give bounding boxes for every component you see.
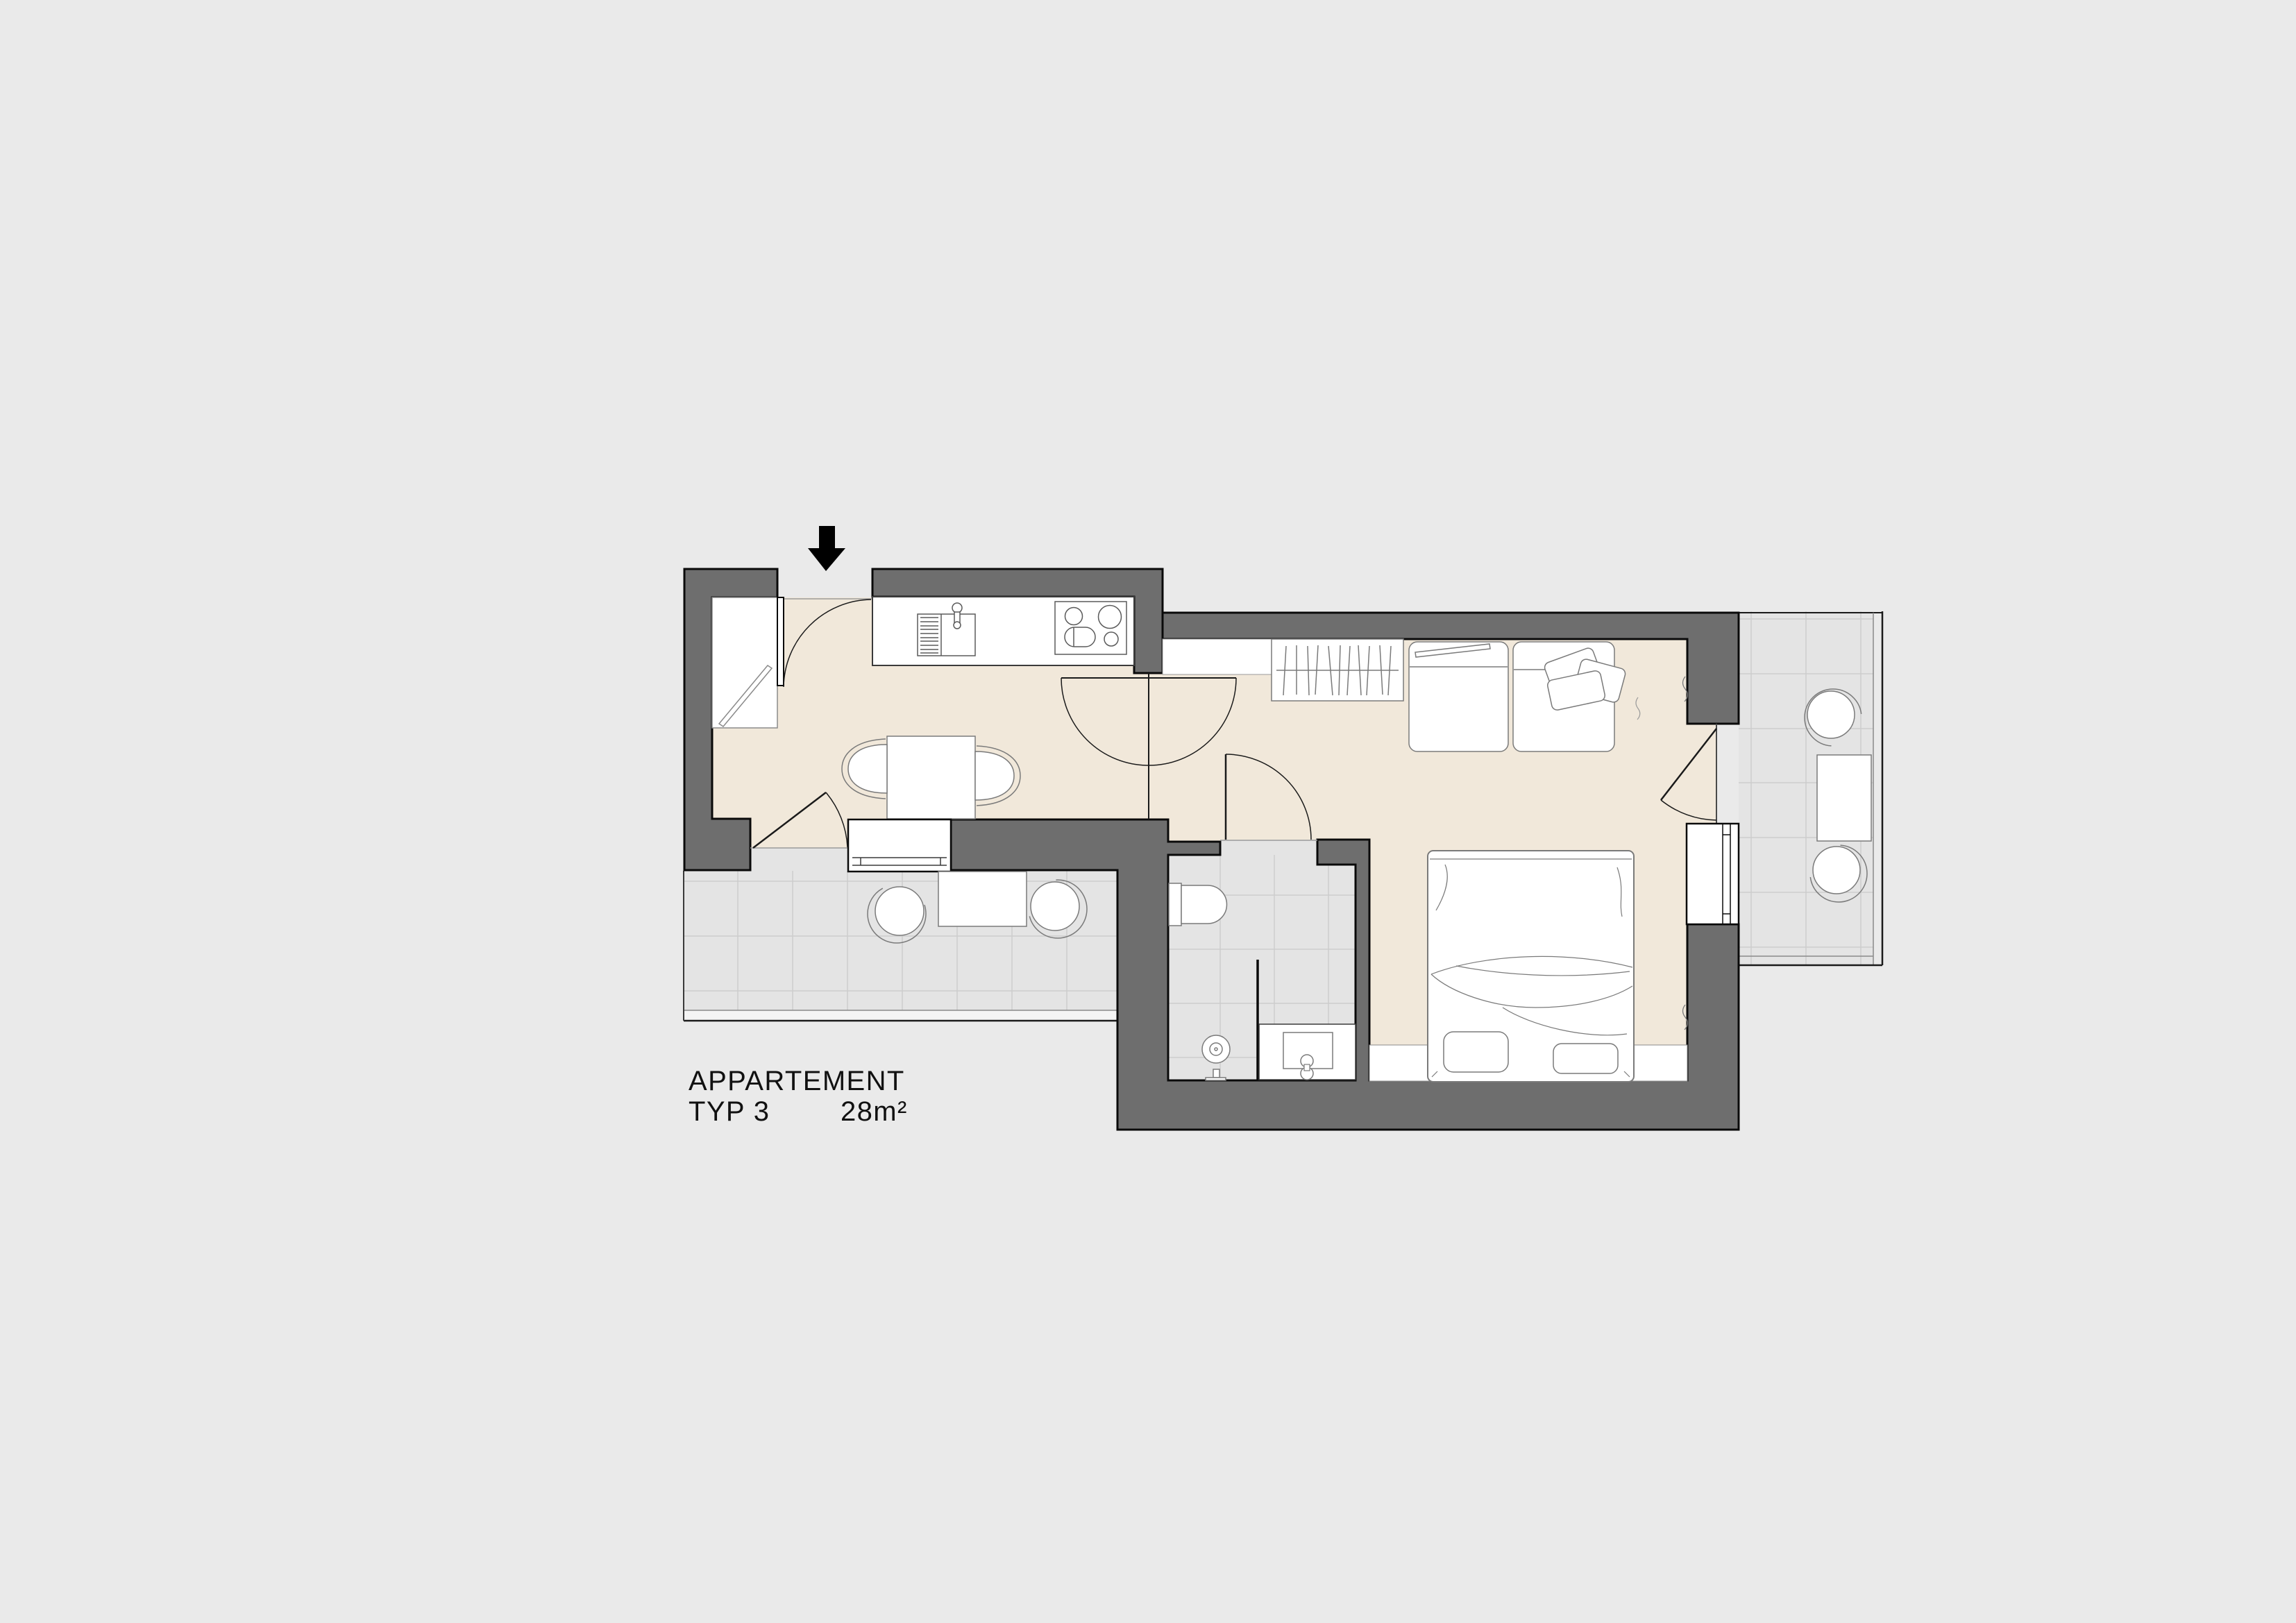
- svg-text:APPARTEMENT: APPARTEMENT: [689, 1066, 905, 1096]
- svg-text:TYP 3: TYP 3: [689, 1096, 770, 1127]
- svg-text:28m²: 28m²: [841, 1096, 908, 1127]
